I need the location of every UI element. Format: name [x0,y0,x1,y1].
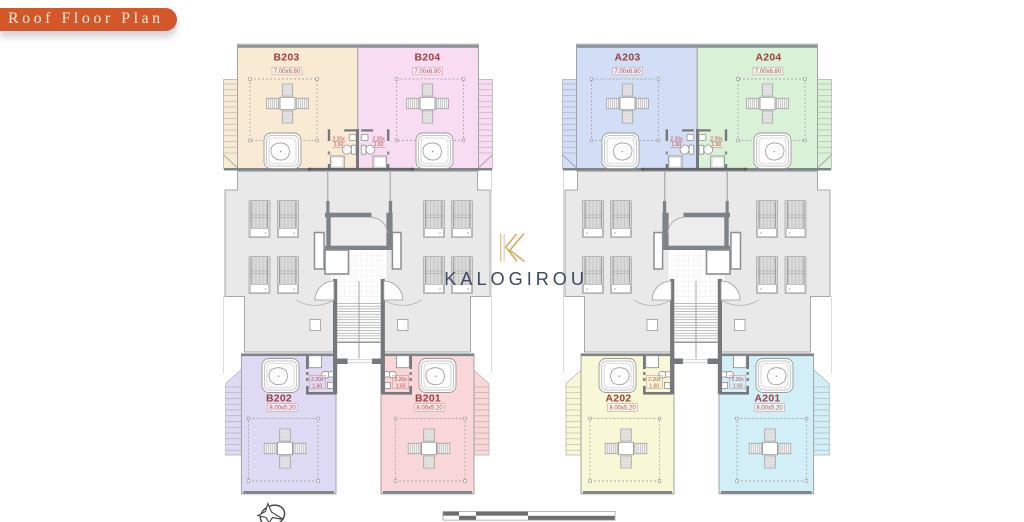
svg-text:2.20x: 2.20x [311,377,324,383]
svg-text:B204: B204 [414,53,440,64]
svg-text:A202: A202 [605,394,631,405]
svg-text:1.60: 1.60 [672,142,682,148]
svg-text:KALOGIROU: KALOGIROU [444,269,588,289]
svg-text:1.60: 1.60 [334,142,344,148]
svg-text:1.60: 1.60 [733,383,743,389]
svg-text:A203: A203 [614,53,640,64]
svg-text:2.20x: 2.20x [648,377,661,383]
svg-text:1.60: 1.60 [396,383,406,389]
svg-text:7.00x6.80: 7.00x6.80 [614,69,641,75]
svg-text:1.60: 1.60 [712,142,722,148]
svg-text:B202: B202 [266,394,292,405]
svg-text:7.00x6.80: 7.00x6.80 [274,69,301,75]
svg-text:B201: B201 [415,394,441,405]
svg-text:1.60: 1.60 [374,142,384,148]
svg-text:A204: A204 [755,53,781,64]
svg-text:2.20x: 2.20x [732,377,745,383]
svg-text:2.20x: 2.20x [395,377,408,383]
svg-text:A201: A201 [754,394,780,405]
svg-text:7.00x6.80: 7.00x6.80 [755,69,782,75]
svg-text:1.60: 1.60 [649,383,659,389]
svg-text:8.00x5.20: 8.00x5.20 [416,406,443,412]
svg-text:B203: B203 [273,53,299,64]
svg-text:7.00x6.80: 7.00x6.80 [414,69,441,75]
svg-text:8.00x5.20: 8.00x5.20 [269,406,296,412]
svg-text:8.00x5.20: 8.00x5.20 [756,406,783,412]
svg-text:1.60: 1.60 [312,383,322,389]
svg-text:8.00x5.20: 8.00x5.20 [609,406,636,412]
